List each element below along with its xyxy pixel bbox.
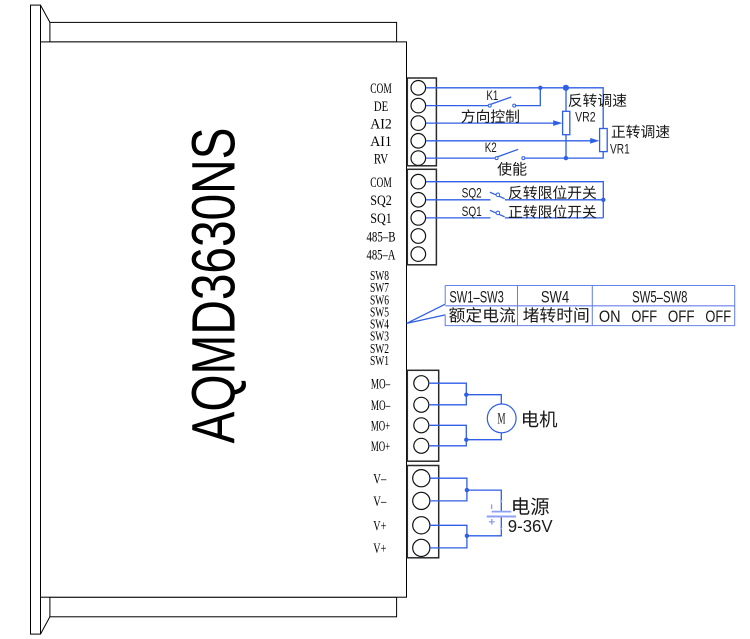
svg-text:AI1: AI1: [370, 134, 392, 150]
svg-text:ON: ON: [599, 308, 621, 326]
svg-text:V–: V–: [373, 494, 387, 510]
svg-text:DE: DE: [374, 99, 388, 115]
svg-text:V–: V–: [373, 472, 387, 488]
svg-text:SQ2: SQ2: [370, 193, 392, 209]
svg-text:SW1: SW1: [370, 353, 389, 368]
svg-text:VR2: VR2: [575, 110, 596, 125]
svg-text:MO–: MO–: [371, 377, 391, 393]
svg-text:COM: COM: [370, 81, 392, 97]
svg-text:OFF: OFF: [705, 308, 731, 326]
svg-text:COM: COM: [370, 175, 392, 191]
svg-text:M: M: [497, 410, 505, 427]
svg-text:K2: K2: [485, 140, 497, 155]
svg-text:485–B: 485–B: [367, 229, 396, 245]
svg-text:MO–: MO–: [371, 398, 391, 414]
svg-text:SQ2: SQ2: [462, 186, 482, 201]
svg-text:V+: V+: [373, 519, 386, 535]
svg-text:SW4: SW4: [541, 288, 569, 306]
svg-text:VR1: VR1: [610, 142, 630, 157]
svg-text:OFF: OFF: [631, 308, 657, 326]
svg-text:SQ1: SQ1: [462, 204, 482, 219]
svg-text:SW5–SW8: SW5–SW8: [632, 288, 687, 306]
svg-text:MO+: MO+: [371, 419, 390, 435]
svg-text:RV: RV: [374, 151, 389, 167]
svg-text:K1: K1: [486, 88, 498, 103]
svg-text:SW1–SW3: SW1–SW3: [449, 288, 504, 306]
svg-text:485–A: 485–A: [367, 247, 397, 263]
svg-text:AI2: AI2: [370, 116, 392, 132]
svg-text:V+: V+: [373, 541, 386, 557]
svg-text:OFF: OFF: [668, 308, 695, 326]
svg-text:AQMD3630NS: AQMD3630NS: [180, 128, 248, 444]
svg-text:9-36V: 9-36V: [508, 516, 553, 536]
svg-text:SQ1: SQ1: [370, 211, 392, 227]
svg-text:MO+: MO+: [371, 439, 390, 455]
